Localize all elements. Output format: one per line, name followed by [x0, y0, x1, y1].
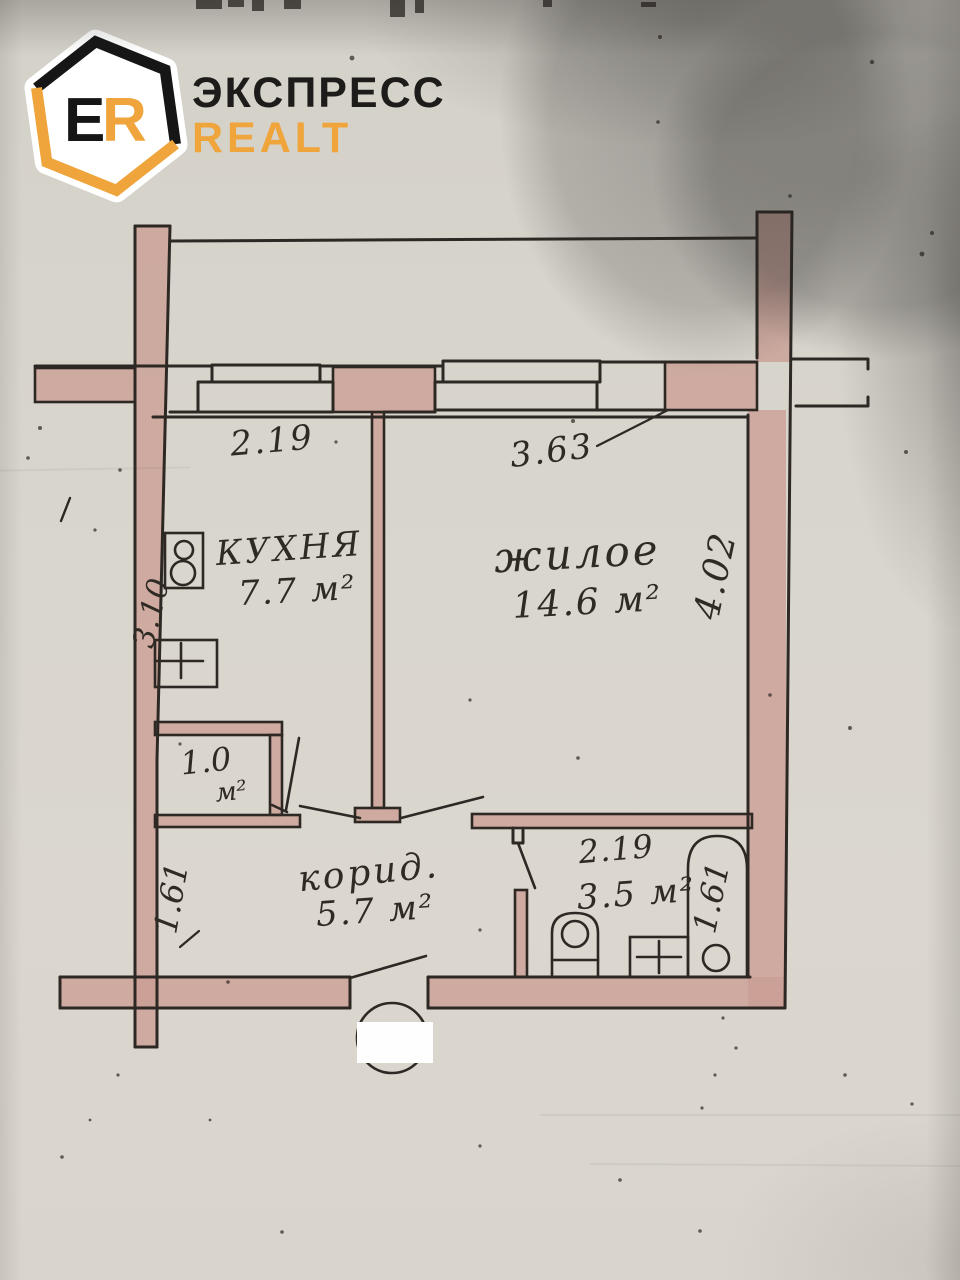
floor-plan: 2.19 3.63 КУХНЯ 7.7 м² жилое 14.6 м² 4.0… — [26, 0, 934, 1234]
wall-band-right — [665, 362, 757, 410]
bathroom-sink-icon — [630, 937, 688, 977]
living-area-label: 14.6 м² — [511, 578, 663, 627]
wall-closet-top — [155, 722, 282, 735]
wall-middle — [372, 412, 384, 808]
kitchen-width-dim: 2.19 — [228, 417, 316, 464]
corridor-area-label: 5.7 м² — [315, 887, 436, 935]
brand-name-line1: ЭКСПРЕСС — [192, 69, 446, 117]
wall-band-left — [35, 368, 135, 402]
balcony-outline — [170, 238, 757, 241]
wall-middle-foot — [355, 808, 400, 822]
kitchen-door-leaf — [300, 806, 360, 818]
entrance-door-leaf — [350, 956, 426, 978]
living-room-label: жилое — [493, 525, 662, 583]
logo-letter-e: E — [64, 86, 105, 155]
bathroom-width-dim: 2.19 — [576, 827, 655, 872]
closet-area-unit: м² — [214, 775, 249, 808]
brand-name-line2: REALT — [192, 114, 352, 162]
redaction-box — [357, 1022, 433, 1063]
kitchen-window — [212, 365, 320, 382]
living-width-dim: 3.63 — [508, 426, 596, 476]
kitchen-label: КУХНЯ — [213, 524, 364, 574]
closet-area-label: 1.0 — [179, 740, 234, 783]
express-realt-logo: E R ЭКСПРЕСС REALT — [37, 42, 446, 191]
dimension-leader-line — [597, 410, 668, 446]
kitchen-sink-icon — [155, 640, 217, 687]
stove-icon — [165, 533, 203, 588]
wall-right — [748, 410, 786, 1008]
wall-band-mid — [333, 367, 435, 412]
living-room-window — [443, 361, 600, 382]
wall-column-right — [756, 212, 792, 362]
logo-letter-r: R — [102, 86, 147, 155]
bathroom-door-leaf — [518, 843, 535, 888]
toilet-icon — [552, 913, 598, 975]
wall-closet-right — [270, 735, 282, 815]
bathroom-area-label: 3.5 м² — [576, 870, 697, 918]
plan-labels: 2.19 3.63 КУХНЯ 7.7 м² жилое 14.6 м² 4.0… — [126, 417, 745, 936]
living-depth-dim: 4.02 — [686, 528, 745, 624]
floor-plan-drawing: 2.19 3.63 КУХНЯ 7.7 м² жилое 14.6 м² 4.0… — [0, 0, 960, 1280]
wall-bottom-right — [428, 977, 785, 1008]
wall-bottom-left — [60, 977, 350, 1008]
top-edge-scribbles — [196, 0, 656, 17]
floor-plan-photo: 2.19 3.63 КУХНЯ 7.7 м² жилое 14.6 м² 4.0… — [0, 0, 960, 1280]
pencil-tick-2 — [61, 498, 70, 521]
wall-bathroom-top — [472, 814, 752, 828]
kitchen-area-label: 7.7 м² — [237, 568, 358, 614]
wall-bath-partition — [515, 890, 527, 977]
wall-corridor-top — [155, 815, 300, 827]
